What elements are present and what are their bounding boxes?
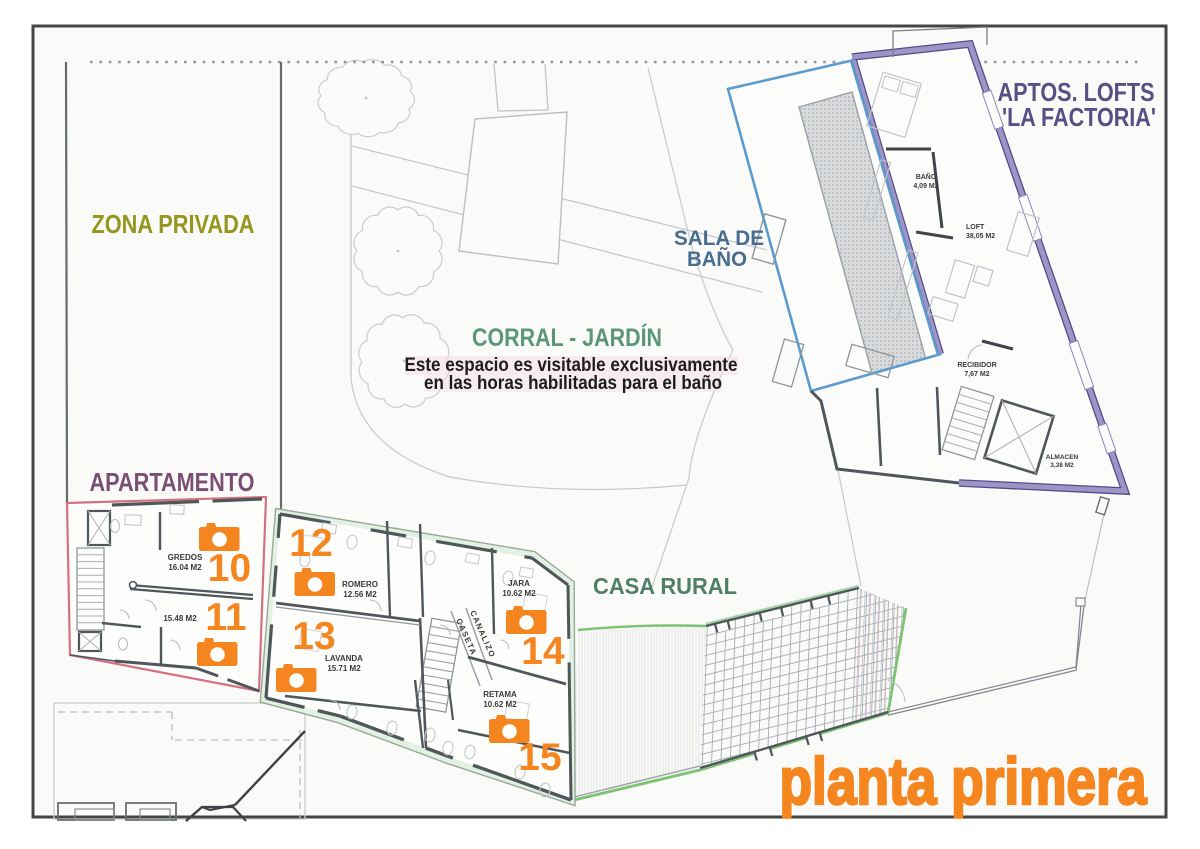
svg-text:10: 10 (208, 547, 251, 590)
svg-text:15: 15 (518, 736, 561, 779)
svg-text:planta primera: planta primera (780, 744, 1148, 818)
svg-text:ZONA PRIVADA: ZONA PRIVADA (92, 209, 255, 239)
svg-text:15.48 M2: 15.48 M2 (163, 614, 197, 623)
svg-text:APARTAMENTO: APARTAMENTO (90, 467, 255, 497)
svg-text:JARA: JARA (508, 579, 530, 588)
svg-text:10.62 M2: 10.62 M2 (502, 589, 536, 598)
svg-text:BAÑO: BAÑO (916, 172, 937, 181)
svg-text:11: 11 (205, 596, 246, 639)
svg-text:LOFT: LOFT (966, 224, 985, 231)
svg-text:CORRAL - JARDÍN: CORRAL - JARDÍN (472, 323, 662, 352)
svg-text:12.56 M2: 12.56 M2 (343, 590, 377, 599)
svg-text:SALA DE: SALA DE (674, 227, 764, 250)
svg-text:13: 13 (292, 615, 335, 658)
svg-text:RETAMA: RETAMA (483, 690, 517, 699)
svg-text:12: 12 (289, 522, 332, 565)
svg-text:14: 14 (521, 630, 565, 673)
svg-text:RECIBIDOR: RECIBIDOR (957, 362, 996, 369)
svg-text:16.04 M2: 16.04 M2 (168, 563, 202, 572)
svg-text:4,09 M2: 4,09 M2 (913, 183, 938, 190)
svg-text:en las horas habilitadas para: en las horas habilitadas para el baño (424, 373, 722, 394)
svg-text:ALMACEN: ALMACEN (1046, 454, 1079, 461)
svg-text:ROMERO: ROMERO (342, 580, 378, 589)
svg-text:3,38 M2: 3,38 M2 (1050, 462, 1074, 469)
svg-text:15.71 M2: 15.71 M2 (327, 664, 361, 673)
svg-text:'LA FACTORIA': 'LA FACTORIA' (1002, 102, 1156, 132)
svg-text:10.62 M2: 10.62 M2 (483, 700, 517, 709)
svg-text:BAÑO: BAÑO (687, 248, 747, 271)
svg-text:7,67 M2: 7,67 M2 (964, 371, 989, 378)
svg-text:GREDOS: GREDOS (168, 553, 203, 562)
svg-text:CASA RURAL: CASA RURAL (593, 573, 737, 599)
svg-text:38,05 M2: 38,05 M2 (966, 233, 995, 240)
